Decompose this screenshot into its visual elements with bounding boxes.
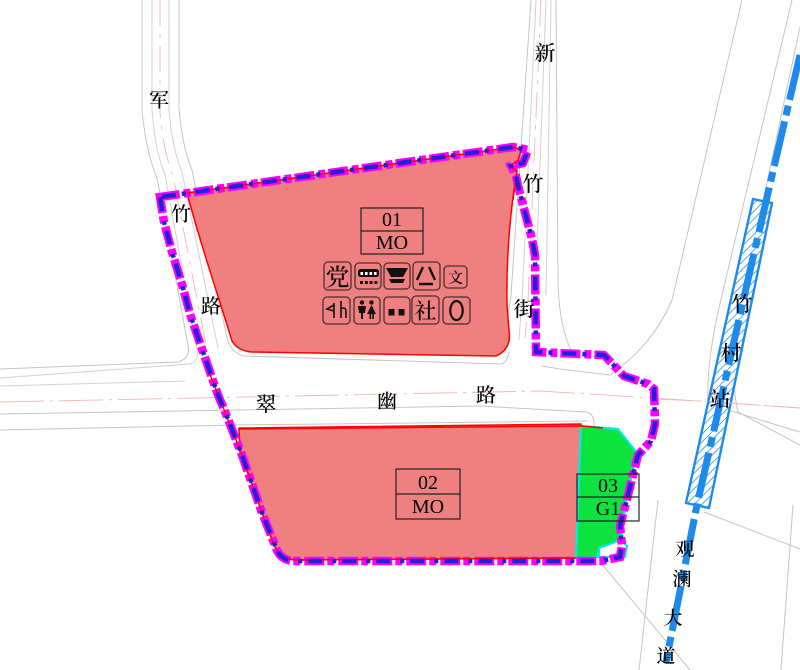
svg-text:02: 02 <box>418 472 438 494</box>
svg-text:MO: MO <box>412 496 444 518</box>
svg-text:03: 03 <box>598 475 618 497</box>
svg-text:G1: G1 <box>596 498 620 520</box>
svg-text:01: 01 <box>382 209 402 231</box>
svg-text:MO: MO <box>376 232 408 254</box>
